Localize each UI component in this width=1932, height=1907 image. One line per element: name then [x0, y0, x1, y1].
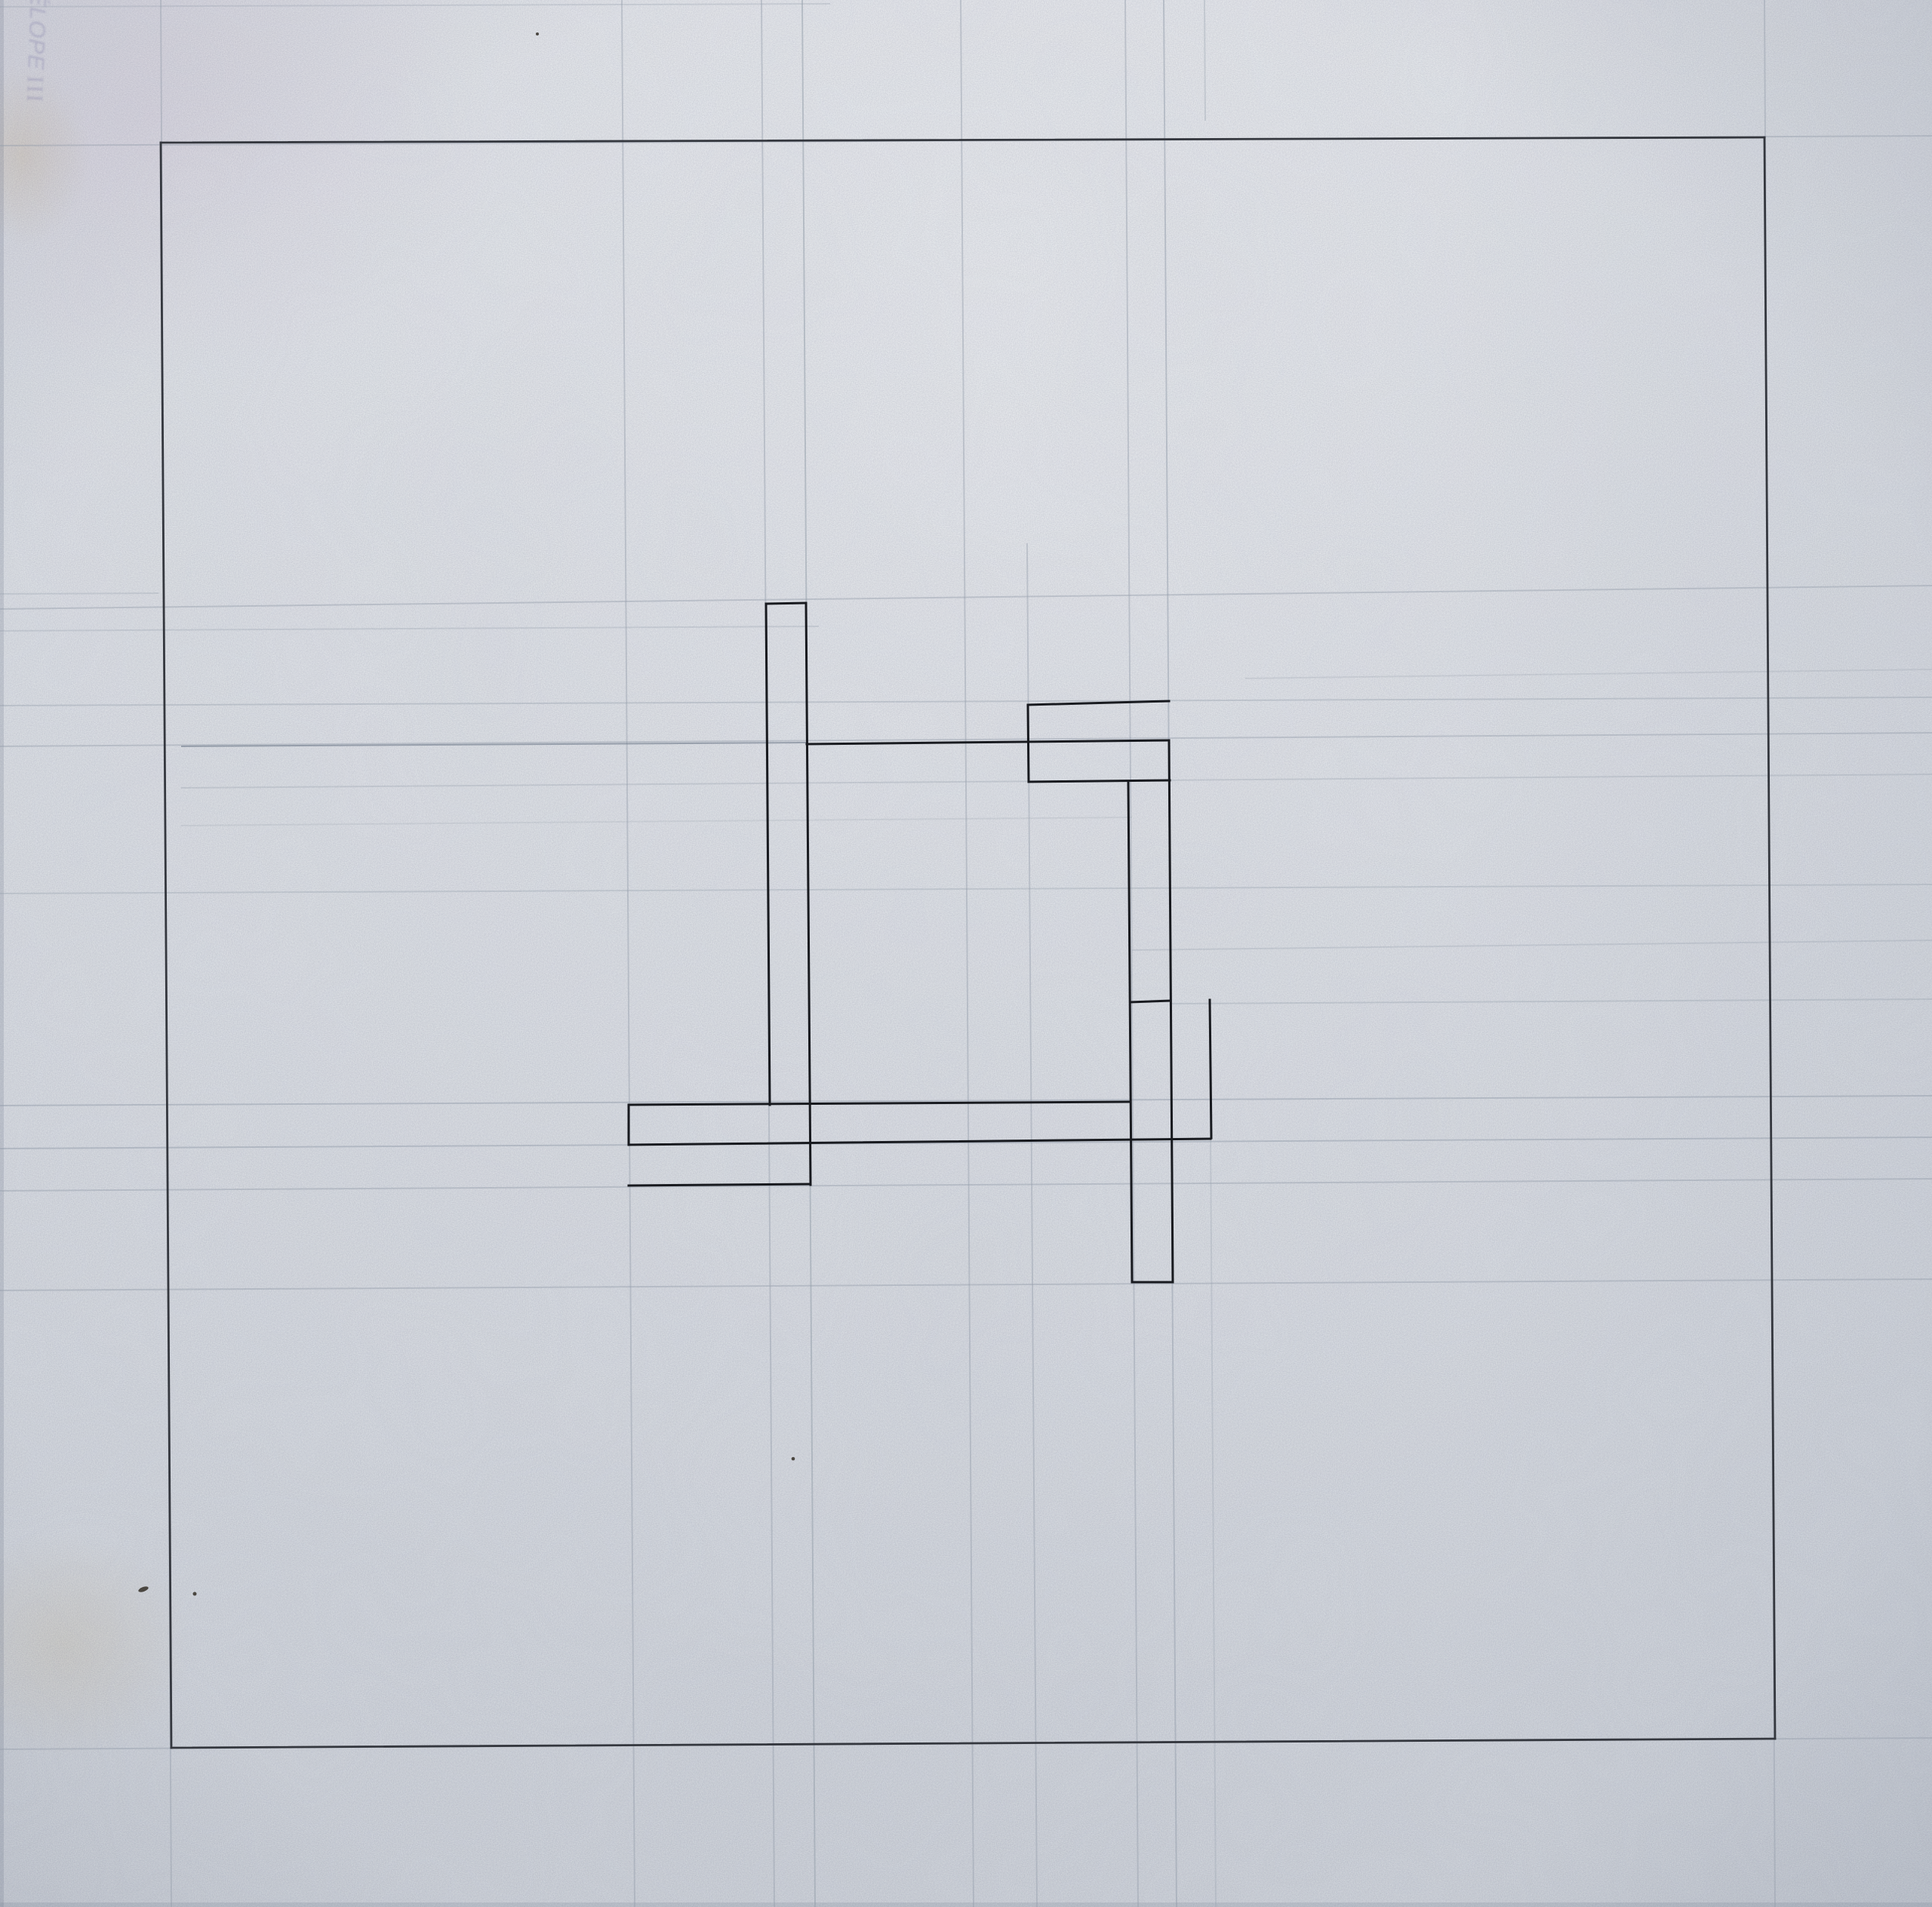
svg-text:III: III [22, 75, 49, 104]
svg-text:ÉLOPE: ÉLOPE [23, 0, 51, 71]
